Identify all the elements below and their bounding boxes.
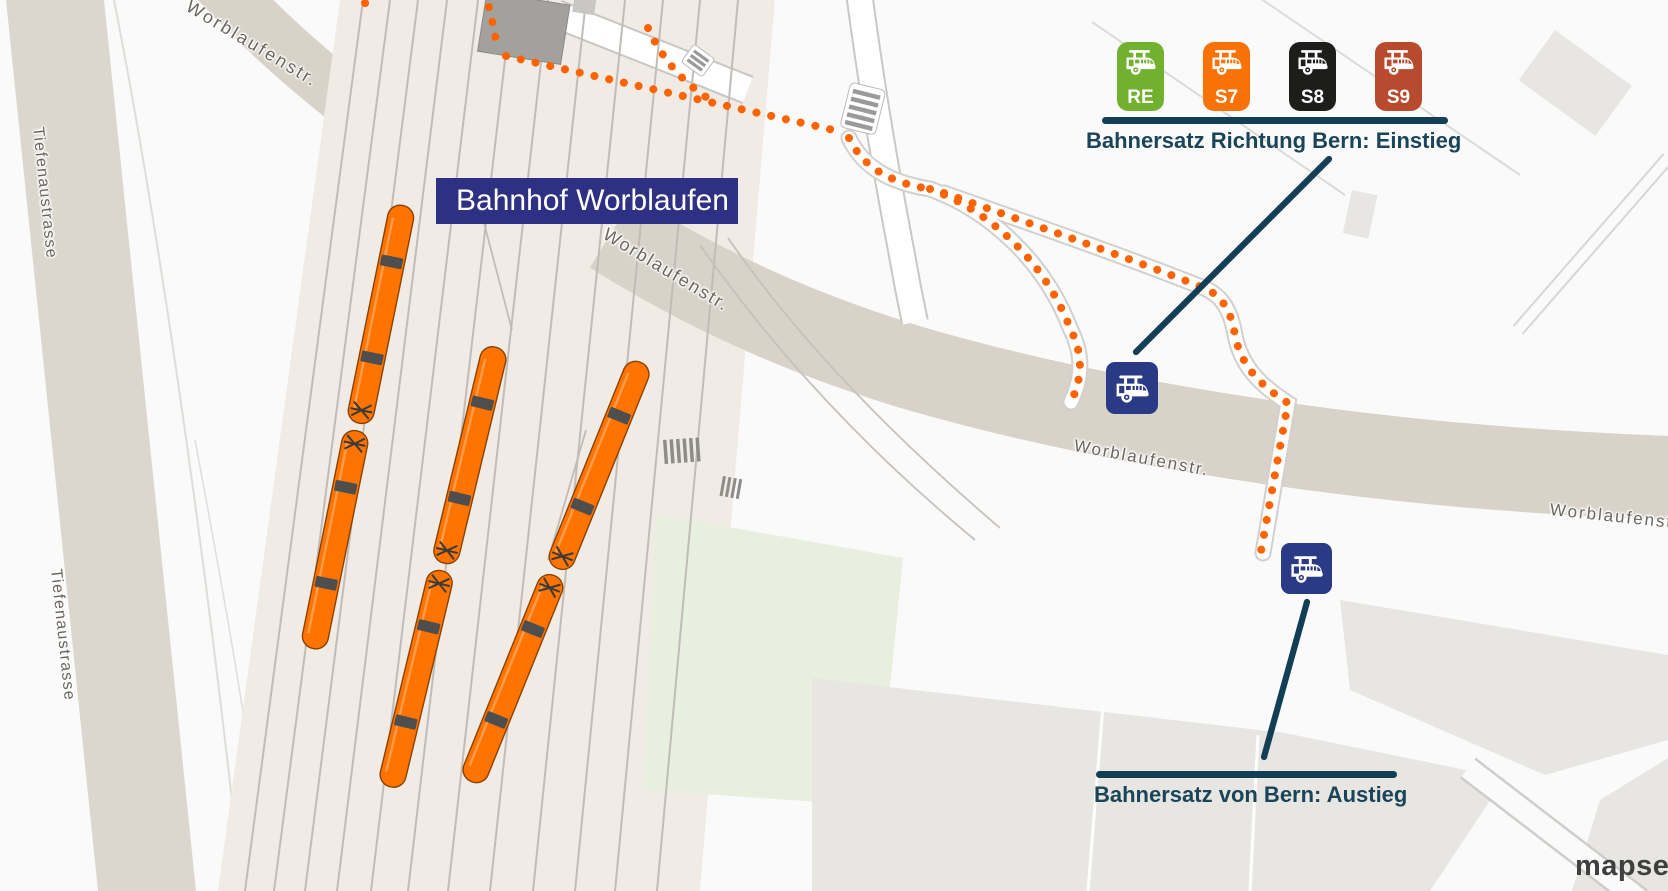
badge-re: RE bbox=[1117, 42, 1164, 111]
badge-s9: S9 bbox=[1375, 42, 1422, 111]
bus-stop-icon-austieg bbox=[1281, 543, 1332, 594]
map-container: Bahnhof Worblaufen Worblaufenstr. Tiefen… bbox=[0, 0, 1668, 891]
einstieg-underline bbox=[1102, 117, 1448, 124]
badge-s8: S8 bbox=[1289, 42, 1336, 111]
svg-text:S8: S8 bbox=[1301, 87, 1324, 108]
austieg-underline bbox=[1096, 771, 1397, 778]
station-label: Bahnhof Worblaufen bbox=[436, 178, 738, 224]
bus-stop-icon-einstieg bbox=[1106, 362, 1158, 414]
svg-text:S9: S9 bbox=[1387, 87, 1410, 108]
austieg-label: Bahnersatz von Bern: Austieg bbox=[1094, 782, 1407, 808]
badge-s7: S7 bbox=[1203, 42, 1250, 111]
svg-text:S7: S7 bbox=[1215, 87, 1238, 108]
einstieg-label: Bahnersatz Richtung Bern: Einstieg bbox=[1086, 128, 1461, 154]
svg-text:RE: RE bbox=[1127, 87, 1153, 108]
line-badges: RE S7 S8 S9 bbox=[1117, 42, 1422, 111]
mapset-logo[interactable]: mapset bbox=[1575, 850, 1668, 883]
